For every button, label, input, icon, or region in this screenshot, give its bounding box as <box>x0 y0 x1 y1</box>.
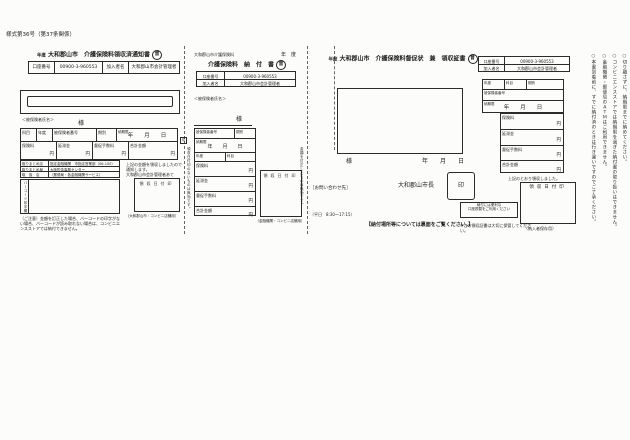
left-slip-title-text: 大和郡山市 介護保険料領収済通知書 <box>48 52 150 59</box>
right-date-value: 年 月 日 <box>422 158 492 166</box>
perforation-line-center <box>307 46 308 234</box>
yen-mark: 円 <box>249 184 254 190</box>
insured-no-label: 被保険者番号 <box>54 130 78 135</box>
yen-mark: 円 <box>50 152 55 158</box>
amount-label: 合計金額 <box>196 208 212 213</box>
left-caution-note: （ご注意）金額を訂正した場合、バーコードの印字がない場合、バーコードが読み取れな… <box>20 216 122 231</box>
yen-mark: 円 <box>557 122 562 128</box>
left-address-window <box>20 90 180 114</box>
left-address-inner-box <box>27 96 173 107</box>
middle-header-year: 年 度 <box>281 52 296 59</box>
payment-form-sheet: 様式第36号（第37条関係） 切 年度 大和郡山市 介護保険料領収済通知書普 口… <box>0 0 630 440</box>
circled-mark-icon: 普 <box>276 60 286 70</box>
middle-slip-title-text: 介護保険料 納 付 書 <box>208 62 274 69</box>
agency-row-label: 取 扱 店 <box>22 173 40 177</box>
left-honorific: 様 <box>78 120 84 128</box>
right-account-table: 口座番号 00900-3-960553 加入者名 大和郡山市会計管理者 <box>478 56 570 72</box>
barcode-empty-area <box>29 180 119 213</box>
right-receipt-stamp-box: 領収日付印 <box>520 182 576 224</box>
middle-honorific: 様 <box>236 116 242 124</box>
insured-no-label: 被保険者番号 <box>484 91 505 95</box>
left-account-table: 口座番号 00900-3-960553 加入者名 大和郡山市会計管理者 <box>28 61 180 74</box>
account-label: 口座番号 <box>479 57 505 64</box>
left-money-table: 科目 年度 被保険者番号 期別 納期限 年 月 日 保険料円 延滞金円 督促手数… <box>20 128 178 160</box>
circled-mark-icon: 普 <box>152 50 162 60</box>
period-label: 期別 <box>528 81 535 85</box>
agency-row-label: 取りまとめ店 <box>22 162 43 166</box>
due-date-label: 納期限 <box>484 102 495 106</box>
left-stamp-caption: （大和郡山市・コンビニ店舗用） <box>122 214 182 218</box>
member-name: 大和郡山市会計管理者 <box>505 65 569 72</box>
direct-debit-promo-box: 納付には便利な 口座振替をご利用ください <box>460 202 518 218</box>
amount-label: 督促手数料 <box>94 143 114 148</box>
subject-label: 科目 <box>227 154 234 158</box>
amount-label: 保険料 <box>502 115 514 120</box>
account-number: 00900-3-960553 <box>55 62 103 73</box>
yen-mark: 円 <box>249 169 254 175</box>
middle-left-side-note: 領収日付印のないものは無効です。 <box>187 147 191 227</box>
left-notify-text: 上記の金額を領収しましたので通知します。 大和郡山市会計管理者あて <box>126 162 182 177</box>
yen-mark: 円 <box>122 152 127 158</box>
yen-mark: 円 <box>171 152 176 158</box>
vertical-note-3: ○金融機関・郵便局のＡＴＭはご利用できません。 <box>601 54 607 230</box>
due-date-value: 年 月 日 <box>483 101 563 112</box>
yen-mark: 円 <box>249 199 254 205</box>
keep-receipt-note: ※この領収証書は大切に保管してください。 <box>460 223 536 233</box>
yen-mark: 円 <box>557 138 562 144</box>
left-slip-title: 年度 大和郡山市 介護保険料領収済通知書普 <box>18 50 181 60</box>
notify-line-1: 上記の金額を領収しましたので通知します。 <box>126 162 182 172</box>
account-label: 口座番号 <box>29 62 55 73</box>
form-number-label: 様式第36号（第37条関係） <box>6 32 75 39</box>
amount-label: 延滞金 <box>502 131 514 136</box>
account-label: 口座番号 <box>197 72 225 79</box>
insured-no-label: 被保険者番号 <box>196 130 217 134</box>
contact-hours: （平日 8:30～17:15） <box>310 212 355 217</box>
circled-mark-icon: 普 <box>468 54 478 64</box>
right-receipt-slip: 年度 大和郡山市 介護保険料督促状 兼 領収証書普 様 年 月 日 大和郡山市長… <box>310 52 628 234</box>
due-date-label: 納期限 <box>196 140 207 144</box>
middle-detail-table: 被保険者番号 期別 納期限 年 月 日 年度 科目 保険料円 延滞金円 督促手数… <box>194 128 256 216</box>
subject-label: 科目 <box>506 81 513 85</box>
subject-label: 科目 <box>22 130 30 135</box>
middle-header-left: 大和郡山市介護保険料 <box>194 52 234 57</box>
notify-line-2: 大和郡山市会計管理者あて <box>126 172 182 177</box>
member-name: 大和郡山市会計管理者 <box>129 62 179 73</box>
left-barcode-box: バーコード印字欄 <box>20 179 120 214</box>
period-label: 期別 <box>98 130 106 135</box>
amount-label: 保険料 <box>22 143 34 148</box>
agency-row-value: （郵便局・各金融機関サービス） <box>50 173 103 177</box>
member-label: 加入者名 <box>197 80 225 87</box>
amount-label: 延滞金 <box>196 178 208 183</box>
middle-insured-name-hint: ＜被保険者氏名＞ <box>194 96 226 101</box>
amount-label: 督促手数料 <box>196 193 216 198</box>
agency-row-value: 指定金融機関 市指定営業部（06-100） <box>50 162 115 166</box>
member-label: 加入者名 <box>479 65 505 72</box>
middle-right-side-note: 金額を訂正したものは無効です。 <box>300 147 304 237</box>
right-receipt-text: 上記のとおり領収しました。 <box>508 176 560 181</box>
left-payment-notice-slip: 年度 大和郡山市 介護保険料領収済通知書普 口座番号 00900-3-96055… <box>18 50 181 232</box>
year-label: 年度 <box>484 81 491 85</box>
vertical-note-2: ○コンビニエンスストアでは納期限を過ぎた納付書の取り扱いはできません。 <box>611 54 617 230</box>
amount-label: 合計金額 <box>130 143 146 148</box>
mayor-seal-box: 印 <box>447 172 475 200</box>
year-label: 年度 <box>196 154 203 158</box>
agency-row-value: 大阪貯金事務センター <box>50 168 85 171</box>
amount-label: 督促手数料 <box>502 147 522 152</box>
yen-mark: 円 <box>557 153 562 159</box>
payment-place-note: 【納付場所等については裏面をご覧ください。】 <box>366 222 473 229</box>
right-honorific: 様 <box>346 158 352 166</box>
receipt-stamp-label: 領収日付印 <box>261 171 301 178</box>
right-detail-table-top: 年度 科目 期別 被保険者番号 納期限 年 月 日 <box>482 79 564 113</box>
middle-receipt-stamp-box: 領収日付印 <box>260 170 302 217</box>
middle-payment-slip: 大和郡山市介護保険料 年 度 介護保険料 納 付 書普 口座番号 00900-3… <box>190 52 304 234</box>
promo-line-2: 口座振替をご利用ください <box>461 207 517 211</box>
middle-slip-title: 介護保険料 納 付 書普 <box>190 60 304 70</box>
left-slip-title-year: 年度 <box>37 54 46 59</box>
due-date-label: 納期限 <box>118 130 129 134</box>
vertical-note-1: ○切り離さずに、納期限までに納めてください。 <box>621 54 627 230</box>
receipt-stamp-label: 領収日付印 <box>521 183 575 191</box>
period-label: 期別 <box>236 130 243 134</box>
year-label: 年度 <box>38 130 46 135</box>
yen-mark: 円 <box>557 168 562 174</box>
amount-label: 延滞金 <box>58 143 70 148</box>
member-name: 大和郡山市会計管理者 <box>225 80 295 87</box>
left-receipt-stamp-box: 領収日付印 <box>134 178 180 212</box>
middle-account-table: 口座番号 00900-3-960553 加入者名 大和郡山市会計管理者 <box>196 71 296 87</box>
right-slip-title-year: 年度 <box>328 58 337 63</box>
barcode-area-label: バーコード印字欄 <box>21 180 29 213</box>
account-number: 00900-3-960553 <box>225 72 295 79</box>
member-label: 加入者名 <box>103 62 129 73</box>
right-slip-title: 年度 大和郡山市 介護保険料督促状 兼 領収証書普 <box>328 54 478 64</box>
yen-mark: 円 <box>86 152 91 158</box>
right-amount-table: 保険料円 延滞金円 督促手数料円 合計金額円 <box>500 113 564 173</box>
contact-label: ［お問い合わせ先］ <box>310 186 351 192</box>
left-agency-table: 取りまとめ店 指定金融機関 市指定営業部（06-100） 取りまとめ局 大阪貯金… <box>20 160 120 178</box>
right-slip-title-text: 大和郡山市 介護保険料督促状 兼 領収証書 <box>340 56 466 63</box>
agency-row-label: 取りまとめ局 <box>22 168 43 171</box>
vertical-note-4: ○本書到着前に、すでに納付済のときは行き違いですのでご了承ください。 <box>590 54 596 230</box>
amount-label: 保険料 <box>196 163 208 168</box>
right-address-window <box>337 88 463 154</box>
mayor-name: 大和郡山市長 <box>398 182 434 190</box>
cut-mark: 切 <box>180 137 187 144</box>
amount-label: 合計金額 <box>502 162 518 167</box>
left-insured-name-hint: ＜被保険者氏名＞ <box>22 117 54 122</box>
account-number: 00900-3-960553 <box>505 57 569 64</box>
receipt-stamp-label: 領収日付印 <box>135 179 179 186</box>
middle-name-underline <box>194 125 252 126</box>
